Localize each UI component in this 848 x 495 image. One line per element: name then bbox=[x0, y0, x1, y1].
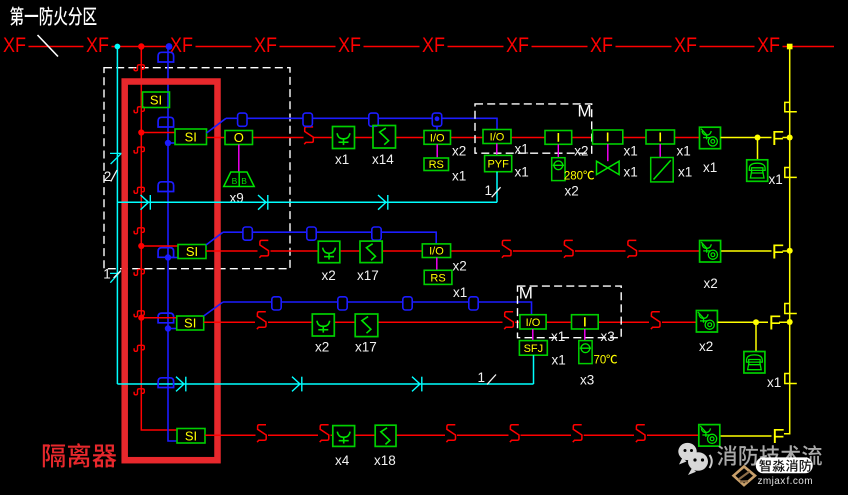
svg-text:x3: x3 bbox=[601, 329, 615, 344]
svg-text:x1: x1 bbox=[551, 329, 565, 344]
svg-text:2: 2 bbox=[104, 169, 112, 184]
svg-text:SI: SI bbox=[185, 428, 197, 443]
svg-text:SI: SI bbox=[185, 129, 197, 144]
svg-text:x1: x1 bbox=[703, 160, 717, 175]
svg-text:1: 1 bbox=[103, 267, 111, 282]
svg-text:SFJ: SFJ bbox=[524, 343, 544, 355]
svg-text:x2: x2 bbox=[452, 144, 466, 159]
svg-text:x1: x1 bbox=[515, 142, 529, 157]
svg-text:RS: RS bbox=[430, 272, 445, 284]
svg-text:I/O: I/O bbox=[429, 246, 444, 258]
svg-text:I/O: I/O bbox=[430, 132, 445, 144]
svg-text:x2: x2 bbox=[574, 144, 588, 159]
svg-text:XF: XF bbox=[338, 34, 361, 57]
svg-text:XF: XF bbox=[3, 34, 26, 57]
svg-text:x2: x2 bbox=[315, 340, 329, 355]
svg-text:B: B bbox=[232, 176, 238, 186]
svg-text:x3: x3 bbox=[580, 373, 594, 388]
svg-text:x2: x2 bbox=[699, 339, 713, 354]
svg-text:F: F bbox=[772, 426, 784, 448]
svg-text:XF: XF bbox=[674, 34, 697, 57]
svg-text:x1: x1 bbox=[678, 165, 692, 180]
svg-text:XF: XF bbox=[86, 34, 109, 57]
svg-text:x17: x17 bbox=[357, 268, 379, 283]
svg-text:F: F bbox=[769, 312, 781, 334]
svg-text:zmjax: zmjax bbox=[758, 476, 786, 487]
svg-text:XF: XF bbox=[506, 34, 529, 57]
svg-text:M: M bbox=[578, 102, 592, 121]
svg-text:x1: x1 bbox=[624, 144, 638, 159]
svg-text:B: B bbox=[241, 176, 247, 186]
svg-text:1: 1 bbox=[485, 183, 493, 198]
svg-text:x1: x1 bbox=[552, 353, 566, 368]
svg-text:x17: x17 bbox=[355, 340, 377, 355]
svg-text:x1: x1 bbox=[769, 172, 783, 187]
svg-text:RS: RS bbox=[429, 159, 444, 171]
svg-text:x2: x2 bbox=[322, 268, 336, 283]
svg-text:F: F bbox=[772, 241, 784, 263]
svg-text:XF: XF bbox=[422, 34, 445, 57]
svg-text:x9: x9 bbox=[230, 191, 244, 206]
svg-text:x2: x2 bbox=[453, 259, 467, 274]
svg-text:x1: x1 bbox=[452, 169, 466, 184]
svg-text:x2: x2 bbox=[704, 276, 718, 291]
svg-text:M: M bbox=[519, 284, 533, 303]
svg-text:f.com: f.com bbox=[787, 476, 813, 487]
svg-text:1: 1 bbox=[478, 370, 486, 385]
svg-text:x1: x1 bbox=[335, 152, 349, 167]
svg-text:x1: x1 bbox=[767, 375, 781, 390]
svg-text:280: 280 bbox=[564, 171, 583, 183]
svg-text:XF: XF bbox=[590, 34, 613, 57]
svg-text:SI: SI bbox=[184, 316, 196, 331]
svg-text:SI: SI bbox=[150, 92, 162, 107]
svg-text:x1: x1 bbox=[515, 165, 529, 180]
svg-text:x18: x18 bbox=[374, 453, 396, 468]
svg-text:x1: x1 bbox=[624, 165, 638, 180]
svg-text:PYF: PYF bbox=[487, 159, 509, 171]
svg-text:70: 70 bbox=[594, 355, 607, 367]
svg-text:SI: SI bbox=[186, 244, 198, 259]
svg-text:XF: XF bbox=[254, 34, 277, 57]
svg-text:x14: x14 bbox=[372, 152, 394, 167]
svg-text:I/O: I/O bbox=[526, 317, 541, 329]
svg-text:F: F bbox=[772, 128, 784, 150]
svg-text:x4: x4 bbox=[335, 453, 350, 468]
svg-text:XF: XF bbox=[757, 34, 780, 57]
svg-text:x1: x1 bbox=[677, 144, 691, 159]
svg-text:x1: x1 bbox=[453, 285, 467, 300]
svg-text:O: O bbox=[234, 130, 244, 145]
svg-text:I/O: I/O bbox=[490, 131, 505, 143]
svg-text:x2: x2 bbox=[565, 184, 579, 199]
